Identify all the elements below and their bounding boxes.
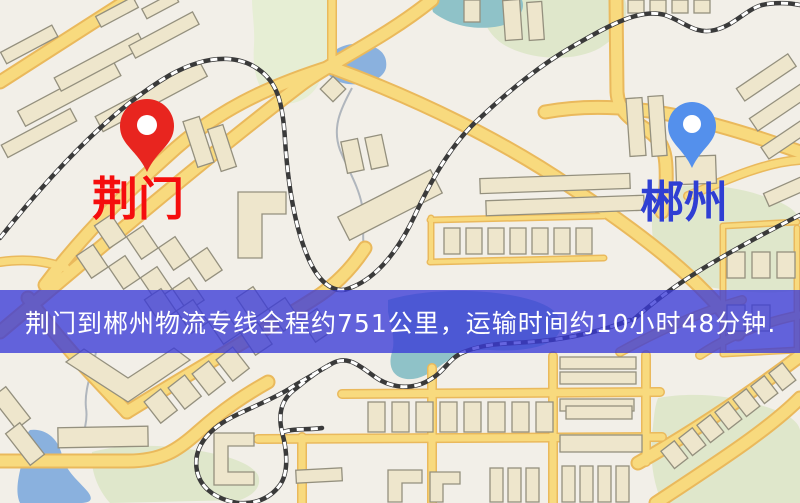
map-artwork <box>0 0 800 503</box>
route-info-text: 荆门到郴州物流专线全程约751公里，运输时间约10小时48分钟. <box>0 304 776 340</box>
origin-city-label: 荆门 <box>92 176 184 222</box>
destination-city-label: 郴州 <box>640 181 728 225</box>
route-info-banner: 荆门到郴州物流专线全程约751公里，运输时间约10小时48分钟. <box>0 290 800 353</box>
map-canvas[interactable]: 荆门 郴州 荆门到郴州物流专线全程约751公里，运输时间约10小时48分钟. <box>0 0 800 503</box>
